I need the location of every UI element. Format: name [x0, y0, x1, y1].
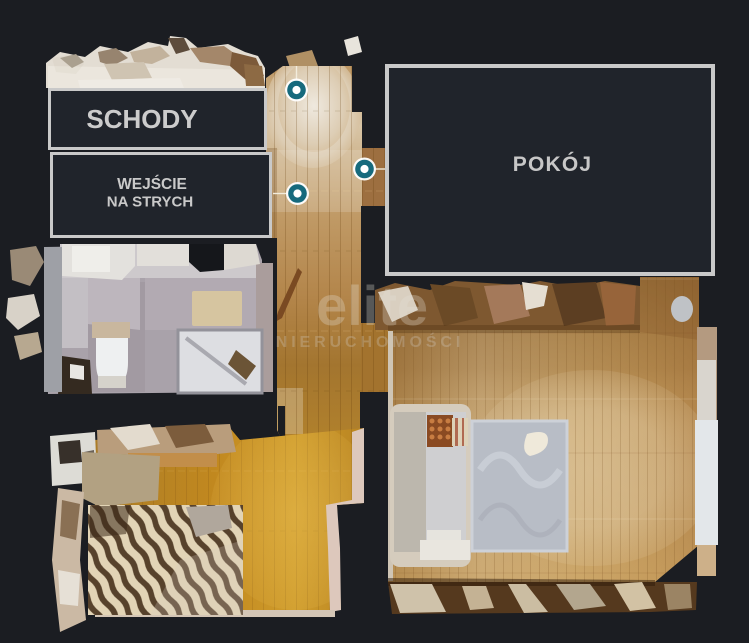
- svg-text:POKÓJ: POKÓJ: [513, 152, 593, 176]
- svg-text:WEJŚCIE: WEJŚCIE: [117, 175, 187, 193]
- svg-text:NA STRYCH: NA STRYCH: [107, 194, 193, 211]
- svg-text:SCHODY: SCHODY: [86, 104, 197, 134]
- svg-text:elite: elite: [316, 274, 428, 337]
- svg-text:NIERUCHOMOŚCI: NIERUCHOMOŚCI: [276, 332, 464, 351]
